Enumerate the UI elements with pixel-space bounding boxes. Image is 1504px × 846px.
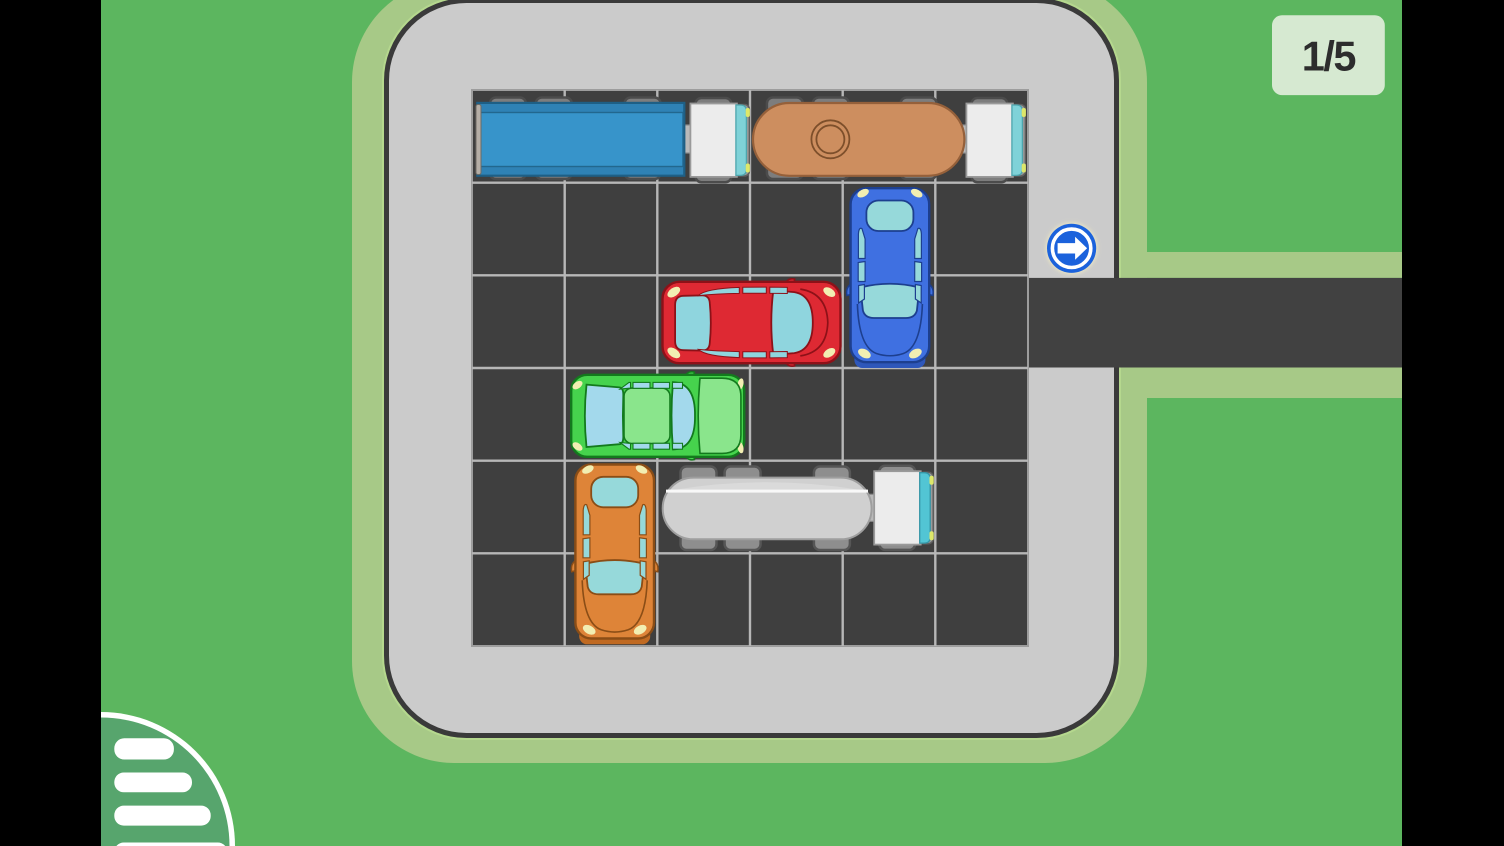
svg-text:1/5: 1/5 [1302, 33, 1356, 80]
